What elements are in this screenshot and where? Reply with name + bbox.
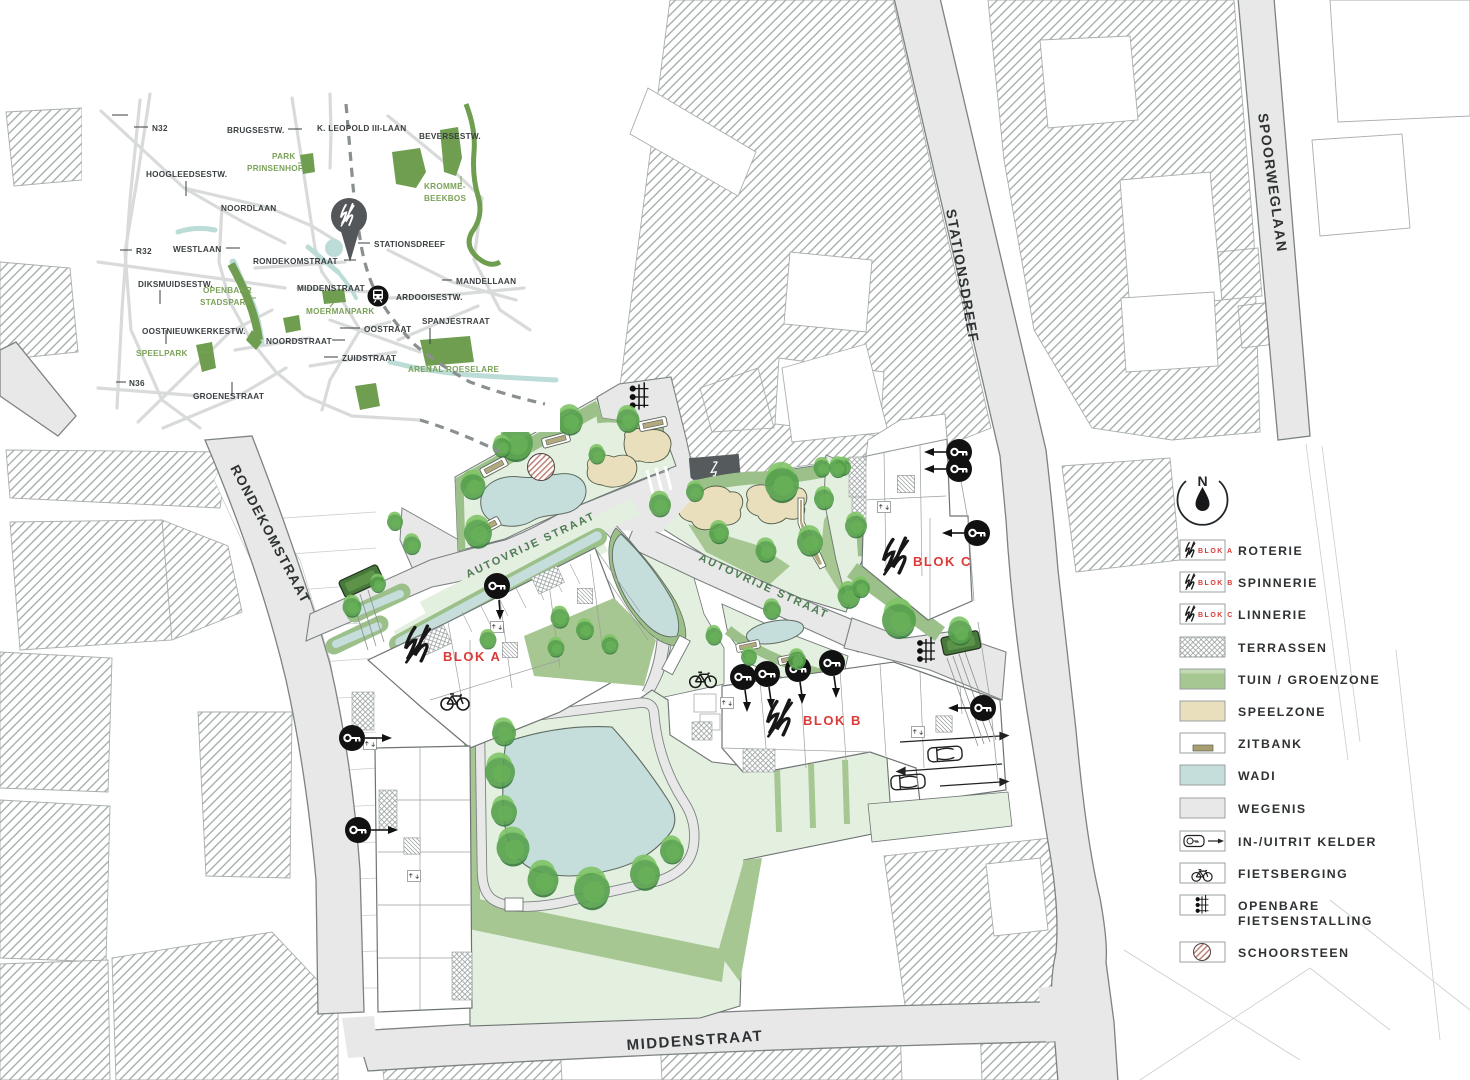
svg-text:TUIN / GROENZONE: TUIN / GROENZONE bbox=[1238, 673, 1380, 687]
svg-text:BLOK C: BLOK C bbox=[913, 554, 972, 569]
svg-text:IN-/UITRIT KELDER: IN-/UITRIT KELDER bbox=[1238, 835, 1377, 849]
svg-text:FIETSBERGING: FIETSBERGING bbox=[1238, 867, 1348, 881]
svg-text:K. LEOPOLD III-LAAN: K. LEOPOLD III-LAAN bbox=[317, 124, 406, 133]
svg-text:KROMME-: KROMME- bbox=[424, 182, 466, 191]
svg-text:MIDDENSTRAAT: MIDDENSTRAAT bbox=[297, 284, 365, 293]
svg-text:SPANJESTRAAT: SPANJESTRAAT bbox=[422, 317, 490, 326]
svg-text:N: N bbox=[1197, 473, 1207, 489]
svg-text:DIKSMUIDSESTW.: DIKSMUIDSESTW. bbox=[138, 280, 213, 289]
svg-text:BLOK A: BLOK A bbox=[1198, 548, 1234, 555]
svg-text:SPEELPARK: SPEELPARK bbox=[136, 349, 188, 358]
svg-text:WESTLAAN: WESTLAAN bbox=[173, 245, 221, 254]
svg-text:ARDOOISESTW.: ARDOOISESTW. bbox=[396, 293, 463, 302]
svg-text:NOORDSTRAAT: NOORDSTRAAT bbox=[266, 337, 332, 346]
svg-text:NOORDLAAN: NOORDLAAN bbox=[221, 204, 276, 213]
svg-text:ZITBANK: ZITBANK bbox=[1238, 737, 1302, 751]
svg-text:BLOK C: BLOK C bbox=[1198, 612, 1234, 619]
svg-text:TERRASSEN: TERRASSEN bbox=[1238, 641, 1327, 655]
svg-text:BLOK B: BLOK B bbox=[803, 713, 862, 728]
svg-text:PRINSENHOF: PRINSENHOF bbox=[247, 164, 303, 173]
svg-text:ZUIDSTRAAT: ZUIDSTRAAT bbox=[342, 354, 396, 363]
svg-text:OPENBARE: OPENBARE bbox=[1238, 899, 1320, 913]
svg-text:N32: N32 bbox=[152, 124, 168, 133]
svg-text:RONDEKOMSTRAAT: RONDEKOMSTRAAT bbox=[253, 257, 338, 266]
svg-text:STADSPARK: STADSPARK bbox=[200, 298, 252, 307]
svg-text:PARK: PARK bbox=[272, 152, 296, 161]
svg-text:ARENAL ROESELARE: ARENAL ROESELARE bbox=[408, 365, 499, 374]
svg-text:OOSTRAAT: OOSTRAAT bbox=[364, 325, 411, 334]
svg-text:BLOK B: BLOK B bbox=[1198, 580, 1234, 587]
svg-text:MANDELLAAN: MANDELLAAN bbox=[456, 277, 516, 286]
svg-text:BEEKBOS: BEEKBOS bbox=[424, 194, 467, 203]
svg-text:BEVERSESTW.: BEVERSESTW. bbox=[419, 132, 481, 141]
svg-text:R32: R32 bbox=[136, 247, 152, 256]
svg-text:SCHOORSTEEN: SCHOORSTEEN bbox=[1238, 946, 1349, 960]
svg-text:STATIONSDREEF: STATIONSDREEF bbox=[374, 240, 445, 249]
svg-text:ROTERIE: ROTERIE bbox=[1238, 544, 1303, 558]
svg-text:MOERMANPARK: MOERMANPARK bbox=[306, 307, 375, 316]
svg-text:SPINNERIE: SPINNERIE bbox=[1238, 576, 1318, 590]
svg-text:HOOGLEEDSESTW.: HOOGLEEDSESTW. bbox=[146, 170, 227, 179]
svg-text:SPEELZONE: SPEELZONE bbox=[1238, 705, 1326, 719]
svg-text:OPENBAAR: OPENBAAR bbox=[203, 286, 252, 295]
svg-text:WEGENIS: WEGENIS bbox=[1238, 802, 1307, 816]
svg-text:GROENESTRAAT: GROENESTRAAT bbox=[193, 392, 264, 401]
svg-text:OOSTNIEUWKERKESTW.: OOSTNIEUWKERKESTW. bbox=[142, 327, 246, 336]
svg-text:FIETSENSTALLING: FIETSENSTALLING bbox=[1238, 914, 1373, 928]
svg-text:N36: N36 bbox=[129, 379, 145, 388]
svg-text:WADI: WADI bbox=[1238, 769, 1276, 783]
svg-text:BRUGSESTW.: BRUGSESTW. bbox=[227, 126, 285, 135]
svg-text:LINNERIE: LINNERIE bbox=[1238, 608, 1307, 622]
svg-text:BLOK A: BLOK A bbox=[443, 649, 501, 664]
